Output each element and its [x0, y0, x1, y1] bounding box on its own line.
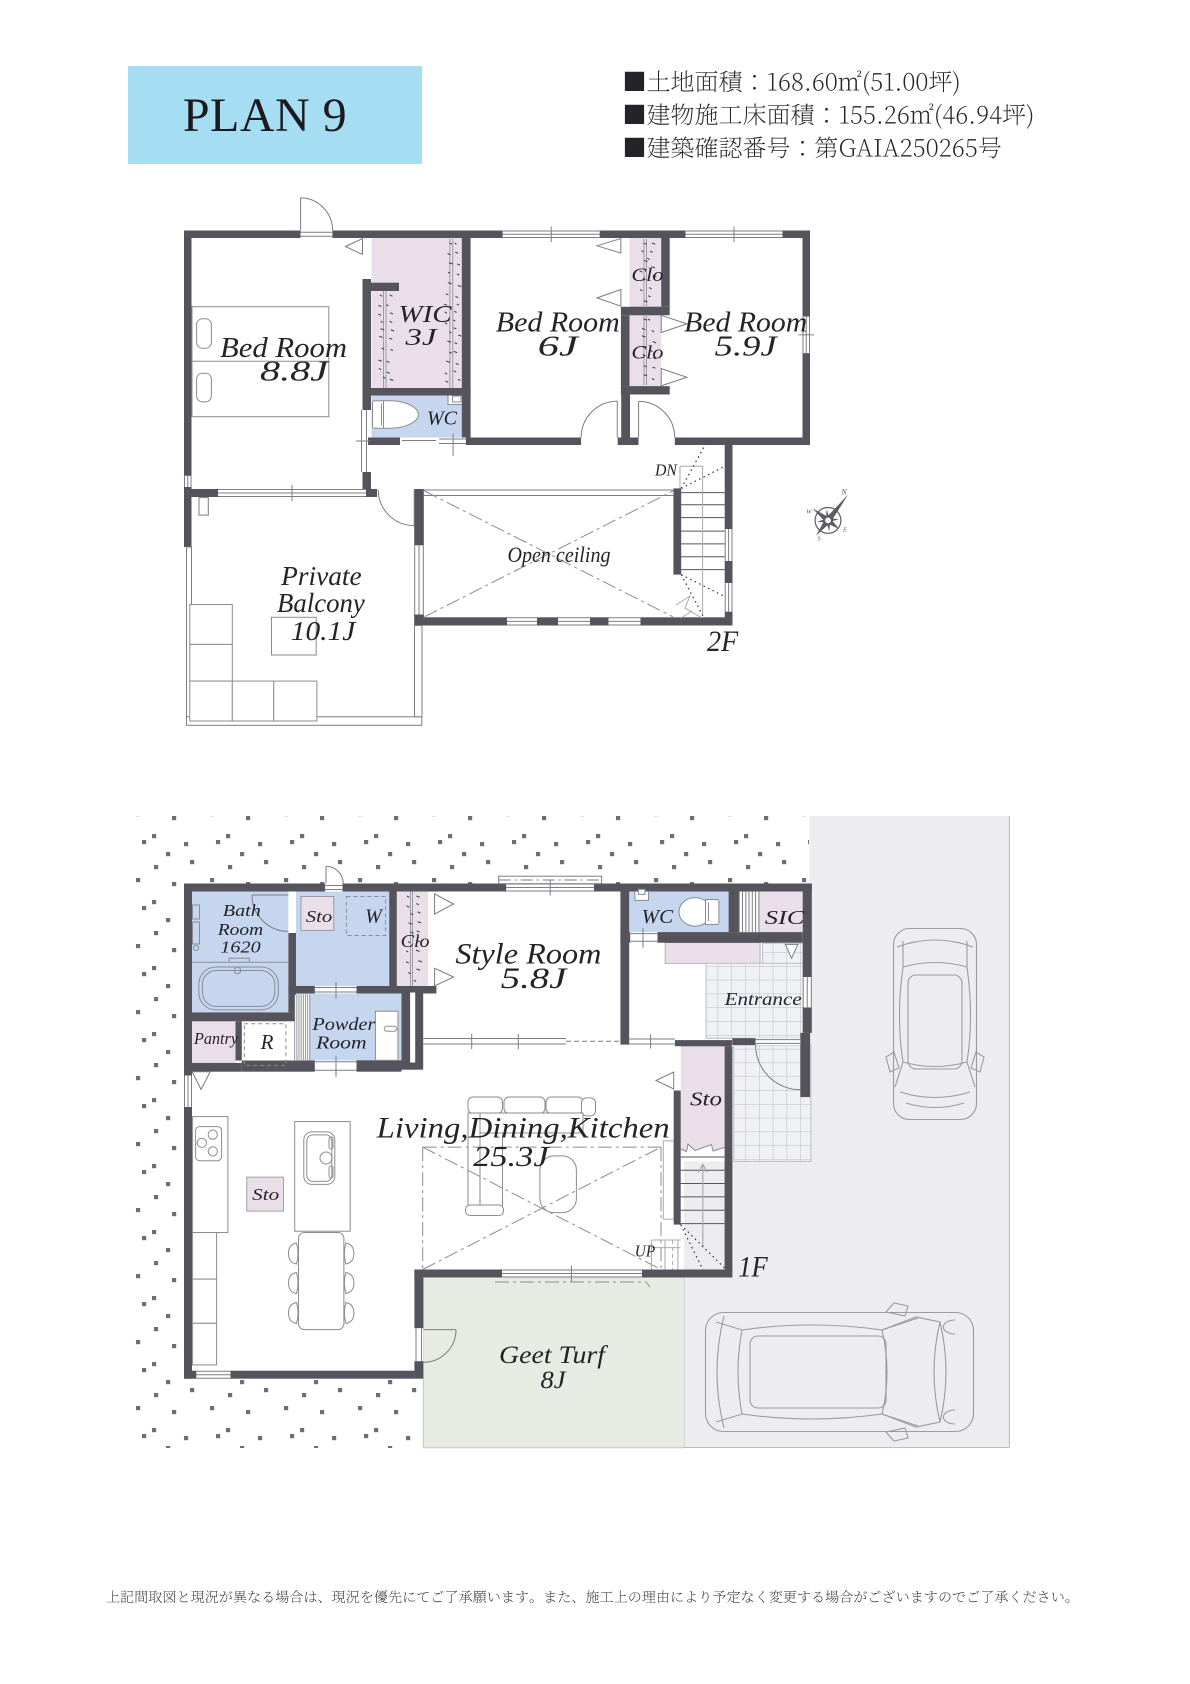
svg-text:2F: 2F [707, 625, 739, 658]
svg-text:E: E [842, 526, 847, 533]
svg-text:Clo: Clo [631, 265, 663, 286]
svg-text:N: N [840, 487, 847, 496]
svg-text:Room: Room [217, 920, 264, 939]
svg-text:1F: 1F [738, 1250, 768, 1283]
svg-text:Bath: Bath [223, 901, 261, 920]
svg-text:UP: UP [635, 1242, 655, 1261]
svg-text:WC: WC [642, 906, 674, 928]
svg-text:PLAN 9: PLAN 9 [183, 89, 347, 142]
svg-text:Entrance: Entrance [723, 989, 801, 1009]
svg-text:Private: Private [280, 561, 362, 591]
svg-text:Geet Turf: Geet Turf [499, 1342, 608, 1369]
svg-text:R: R [260, 1030, 274, 1054]
svg-text:Pantry: Pantry [193, 1029, 239, 1048]
svg-text:10.1J: 10.1J [291, 616, 358, 646]
svg-text:Room: Room [315, 1033, 367, 1053]
svg-text:WC: WC [427, 408, 458, 430]
svg-text:3J: 3J [404, 325, 438, 351]
svg-text:6J: 6J [538, 331, 580, 363]
svg-text:SIC: SIC [765, 907, 805, 929]
svg-text:Sto: Sto [252, 1185, 279, 1204]
svg-text:Open ceiling: Open ceiling [508, 542, 611, 567]
svg-text:W: W [806, 508, 812, 515]
svg-text:Clo: Clo [631, 343, 663, 364]
svg-text:Powder: Powder [311, 1014, 375, 1034]
svg-text:DN: DN [654, 461, 678, 480]
svg-text:1620: 1620 [220, 938, 261, 957]
svg-text:Sto: Sto [306, 907, 333, 926]
svg-text:Sto: Sto [690, 1089, 722, 1111]
svg-text:5.9J: 5.9J [715, 331, 778, 363]
svg-text:W: W [365, 906, 384, 928]
svg-text:8.8J: 8.8J [260, 356, 330, 388]
svg-text:25.3J: 25.3J [473, 1141, 550, 1173]
svg-text:Balcony: Balcony [277, 588, 365, 618]
svg-text:Clo: Clo [401, 931, 430, 951]
svg-text:5.8J: 5.8J [501, 963, 569, 995]
svg-text:Living,Dining,Kitchen: Living,Dining,Kitchen [376, 1112, 670, 1145]
svg-text:8J: 8J [541, 1367, 568, 1394]
